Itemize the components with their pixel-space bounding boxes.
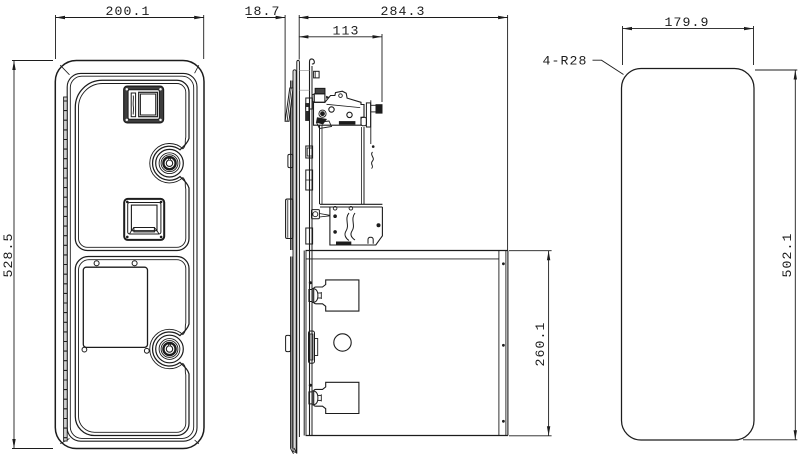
svg-text:4-R28: 4-R28 bbox=[542, 53, 587, 68]
svg-text:18.7: 18.7 bbox=[244, 4, 280, 19]
svg-text:260.1: 260.1 bbox=[533, 321, 548, 366]
svg-text:502.1: 502.1 bbox=[780, 232, 795, 277]
svg-text:200.1: 200.1 bbox=[105, 4, 150, 19]
svg-text:284.3: 284.3 bbox=[380, 4, 425, 19]
svg-text:528.5: 528.5 bbox=[1, 232, 16, 277]
svg-text:113: 113 bbox=[332, 23, 359, 38]
svg-text:179.9: 179.9 bbox=[664, 15, 709, 30]
